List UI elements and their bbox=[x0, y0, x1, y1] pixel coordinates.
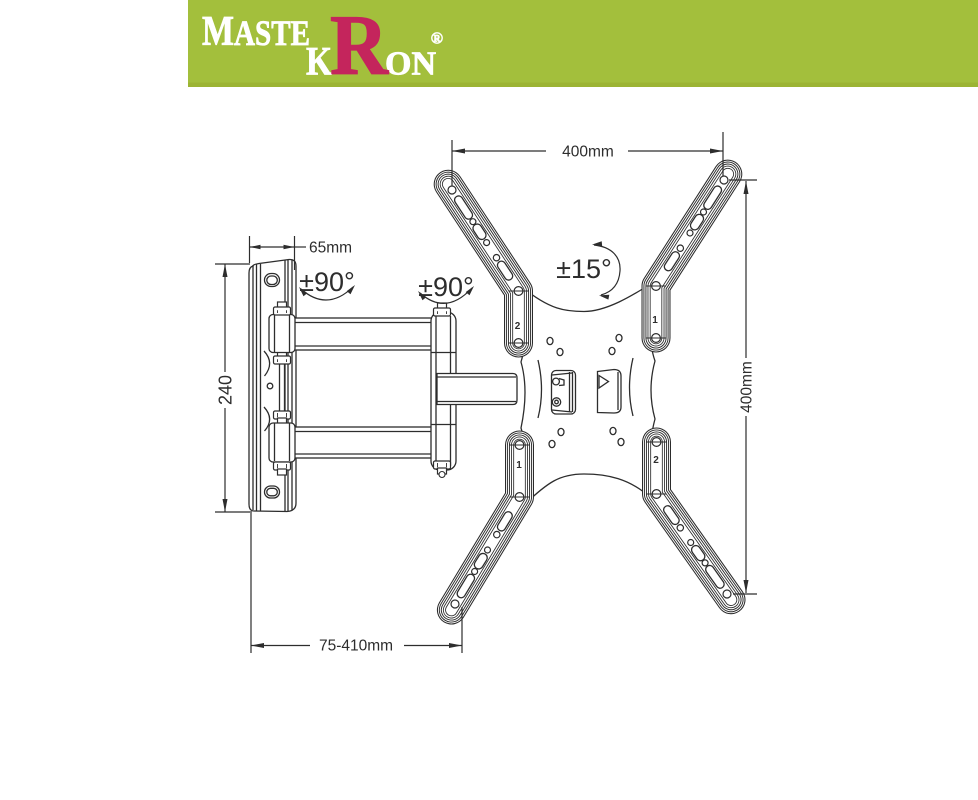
svg-text:2: 2 bbox=[515, 321, 521, 332]
svg-text:1: 1 bbox=[516, 460, 522, 471]
svg-text:MASTE: MASTE bbox=[202, 9, 310, 55]
svg-text:R: R bbox=[434, 34, 441, 44]
svg-text:R: R bbox=[330, 0, 389, 93]
svg-text:K: K bbox=[306, 39, 332, 84]
svg-text:400mm: 400mm bbox=[739, 361, 756, 413]
svg-text:240: 240 bbox=[216, 375, 236, 405]
svg-text:±15°: ±15° bbox=[556, 254, 612, 284]
svg-text:65mm: 65mm bbox=[309, 240, 352, 257]
svg-text:1: 1 bbox=[652, 315, 658, 326]
svg-text:ON: ON bbox=[385, 46, 436, 83]
svg-text:400mm: 400mm bbox=[562, 144, 614, 161]
svg-text:75-410mm: 75-410mm bbox=[319, 638, 393, 655]
svg-text:2: 2 bbox=[653, 455, 659, 466]
